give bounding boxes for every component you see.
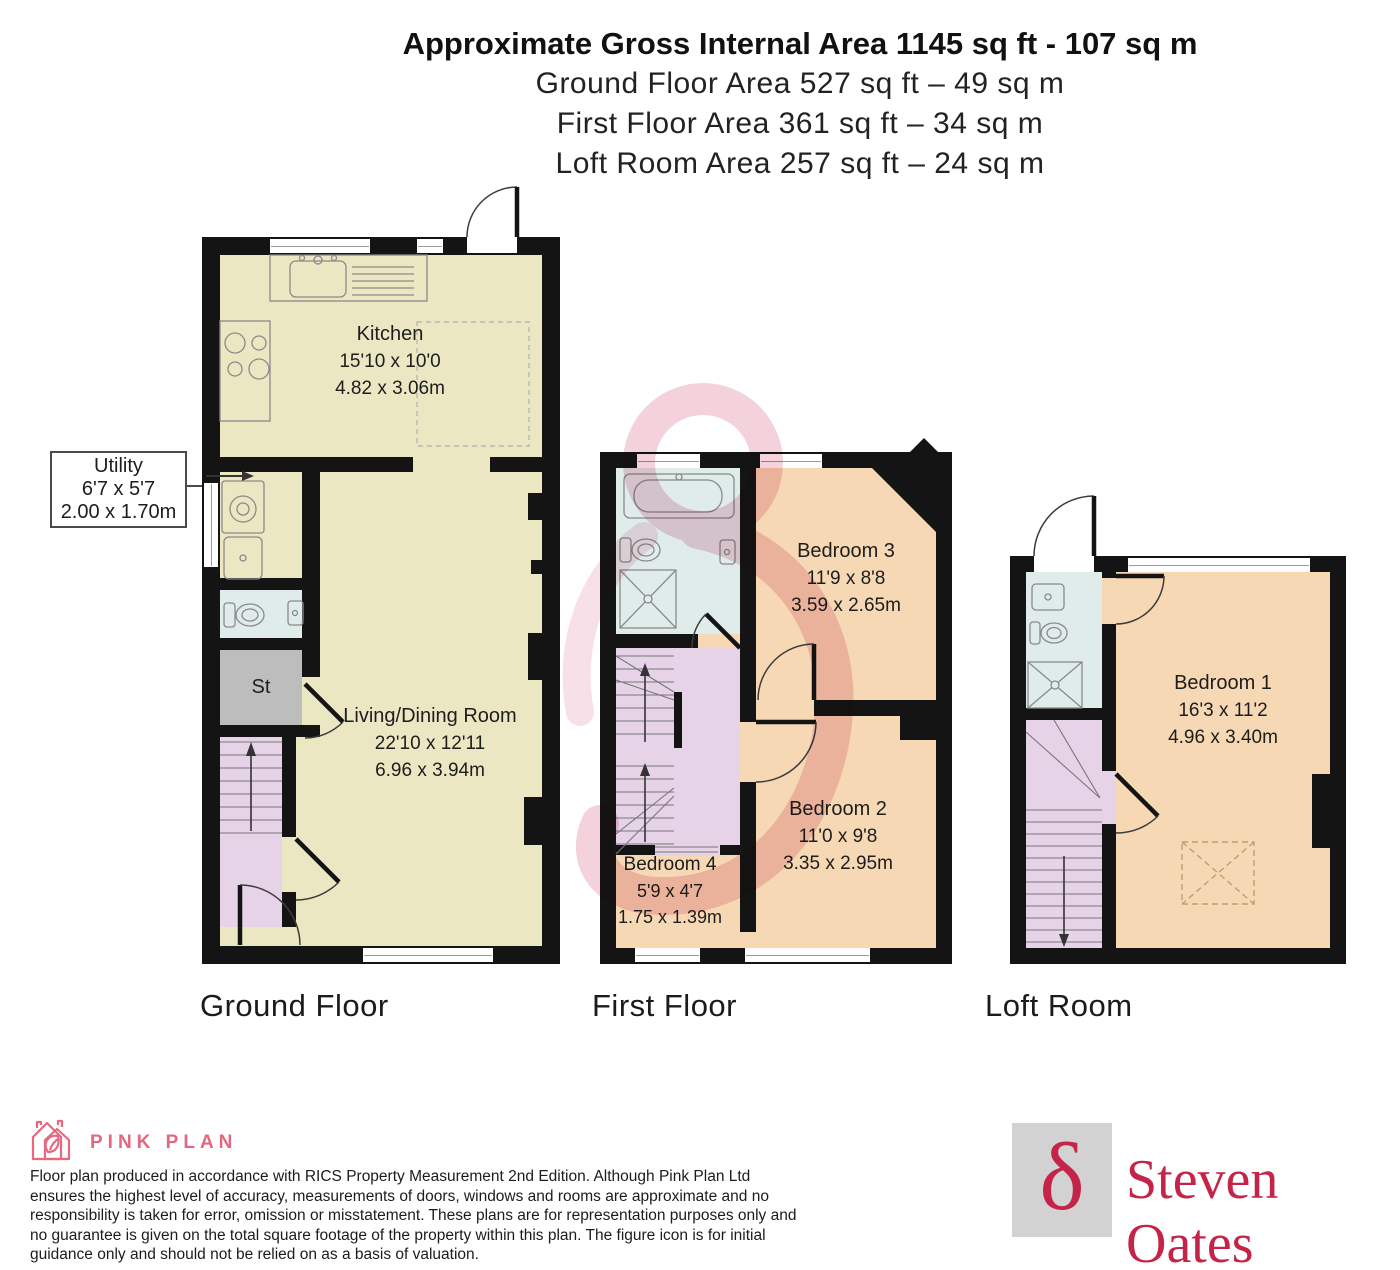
- staircase: [616, 656, 674, 854]
- room-size-imperial: 5'9 x 4'7: [618, 878, 722, 904]
- basin-icon: [720, 540, 735, 564]
- room-label-kitchen: Kitchen 15'10 x 10'0 4.82 x 3.06m: [335, 321, 445, 402]
- room-name: Living/Dining Room: [343, 703, 516, 730]
- room-label-bedroom3: Bedroom 3 11'9 x 8'8 3.59 x 2.65m: [791, 538, 901, 619]
- room-size-metric: 4.96 x 3.40m: [1168, 724, 1278, 751]
- room-name: Kitchen: [335, 321, 445, 348]
- pinkplan-brand-text: PINK PLAN: [90, 1132, 237, 1154]
- basin-icon: [288, 601, 303, 625]
- floorplan-page: Approximate Gross Internal Area 1145 sq …: [0, 0, 1400, 1270]
- staircase: [220, 742, 282, 833]
- room-size-imperial: 6'7 x 5'7: [52, 478, 185, 501]
- first-floor-plan: Bedroom 3 11'9 x 8'8 3.59 x 2.65m Bedroo…: [600, 452, 952, 964]
- room-name: Utility: [52, 455, 185, 478]
- steven-oates-logo-box: δ: [1012, 1123, 1112, 1237]
- room-name: Bedroom 1: [1168, 670, 1278, 697]
- room-label-bedroom1: Bedroom 1 16'3 x 11'2 4.96 x 3.40m: [1168, 670, 1278, 751]
- entry-arrow-icon: [206, 471, 254, 481]
- door-shower-room: [1116, 576, 1164, 624]
- loft-room-area-line: Loft Room Area 257 sq ft – 24 sq m: [210, 144, 1390, 184]
- caption-ground-floor: Ground Floor: [200, 988, 389, 1024]
- toilet-icon: [1030, 622, 1067, 644]
- door-front: [240, 885, 300, 945]
- door-bedroom2: [756, 722, 816, 782]
- room-name: Bedroom 4: [618, 852, 722, 878]
- room-label-bedroom4: Bedroom 4 5'9 x 4'7 1.75 x 1.39m: [618, 852, 722, 930]
- door-back: [467, 187, 517, 237]
- stove-icon: [225, 333, 269, 379]
- pinkplan-house-icon: [28, 1118, 76, 1164]
- room-size-imperial: 15'10 x 10'0: [335, 348, 445, 375]
- room-size-metric: 3.59 x 2.65m: [791, 592, 901, 619]
- room-name: Bedroom 2: [783, 796, 893, 823]
- room-label-living-dining: Living/Dining Room 22'10 x 12'11 6.96 x …: [343, 703, 516, 784]
- basin-icon: [1032, 584, 1064, 610]
- room-size-imperial: 11'0 x 9'8: [783, 823, 893, 850]
- staircase: [1026, 720, 1102, 947]
- room-size-imperial: 11'9 x 8'8: [791, 565, 901, 592]
- delta-icon: δ: [1039, 1129, 1084, 1225]
- utility-sink-icon: [224, 537, 262, 579]
- toilet-icon: [224, 603, 264, 627]
- door-loft-entry: [1034, 496, 1094, 556]
- caption-loft-room: Loft Room: [985, 988, 1133, 1024]
- room-label-bedroom2: Bedroom 2 11'0 x 9'8 3.35 x 2.95m: [783, 796, 893, 877]
- bath-icon: [624, 474, 734, 518]
- room-size-metric: 3.35 x 2.95m: [783, 850, 893, 877]
- room-size-imperial: 16'3 x 11'2: [1168, 697, 1278, 724]
- room-label-storage: St: [252, 674, 271, 701]
- room-size-metric: 6.96 x 3.94m: [343, 757, 516, 784]
- washer-icon: [222, 481, 264, 533]
- utility-callout: Utility 6'7 x 5'7 2.00 x 1.70m: [50, 451, 187, 528]
- shower-icon: [620, 570, 676, 628]
- room-size-metric: 1.75 x 1.39m: [618, 904, 722, 930]
- page-title: Approximate Gross Internal Area 1145 sq …: [210, 24, 1390, 64]
- toilet-icon: [620, 538, 660, 562]
- room-name: St: [252, 674, 271, 701]
- ground-floor-area-line: Ground Floor Area 527 sq ft – 49 sq m: [210, 64, 1390, 104]
- door-storage: [305, 684, 343, 738]
- ground-floor-plan: Kitchen 15'10 x 10'0 4.82 x 3.06m Living…: [202, 237, 560, 964]
- door-bedroom1: [1116, 774, 1158, 833]
- steven-oates-name: Steven Oates: [1126, 1148, 1400, 1270]
- door-bathroom: [692, 614, 740, 648]
- shower-icon: [1028, 662, 1082, 708]
- caption-first-floor: First Floor: [592, 988, 737, 1024]
- room-size-metric: 4.82 x 3.06m: [335, 375, 445, 402]
- callout-connector: [185, 485, 202, 487]
- door-living: [296, 839, 339, 900]
- header: Approximate Gross Internal Area 1145 sq …: [210, 24, 1390, 184]
- loft-room-plan: Bedroom 1 16'3 x 11'2 4.96 x 3.40m: [1010, 556, 1346, 964]
- fixtures-layer: [1010, 556, 1346, 964]
- door-bedroom3: [758, 644, 814, 700]
- room-size-imperial: 22'10 x 12'11: [343, 730, 516, 757]
- disclaimer-text: Floor plan produced in accordance with R…: [30, 1167, 808, 1265]
- room-size-metric: 2.00 x 1.70m: [52, 501, 185, 524]
- room-name: Bedroom 3: [791, 538, 901, 565]
- first-floor-area-line: First Floor Area 361 sq ft – 34 sq m: [210, 104, 1390, 144]
- rooflight-outline: [1182, 842, 1254, 904]
